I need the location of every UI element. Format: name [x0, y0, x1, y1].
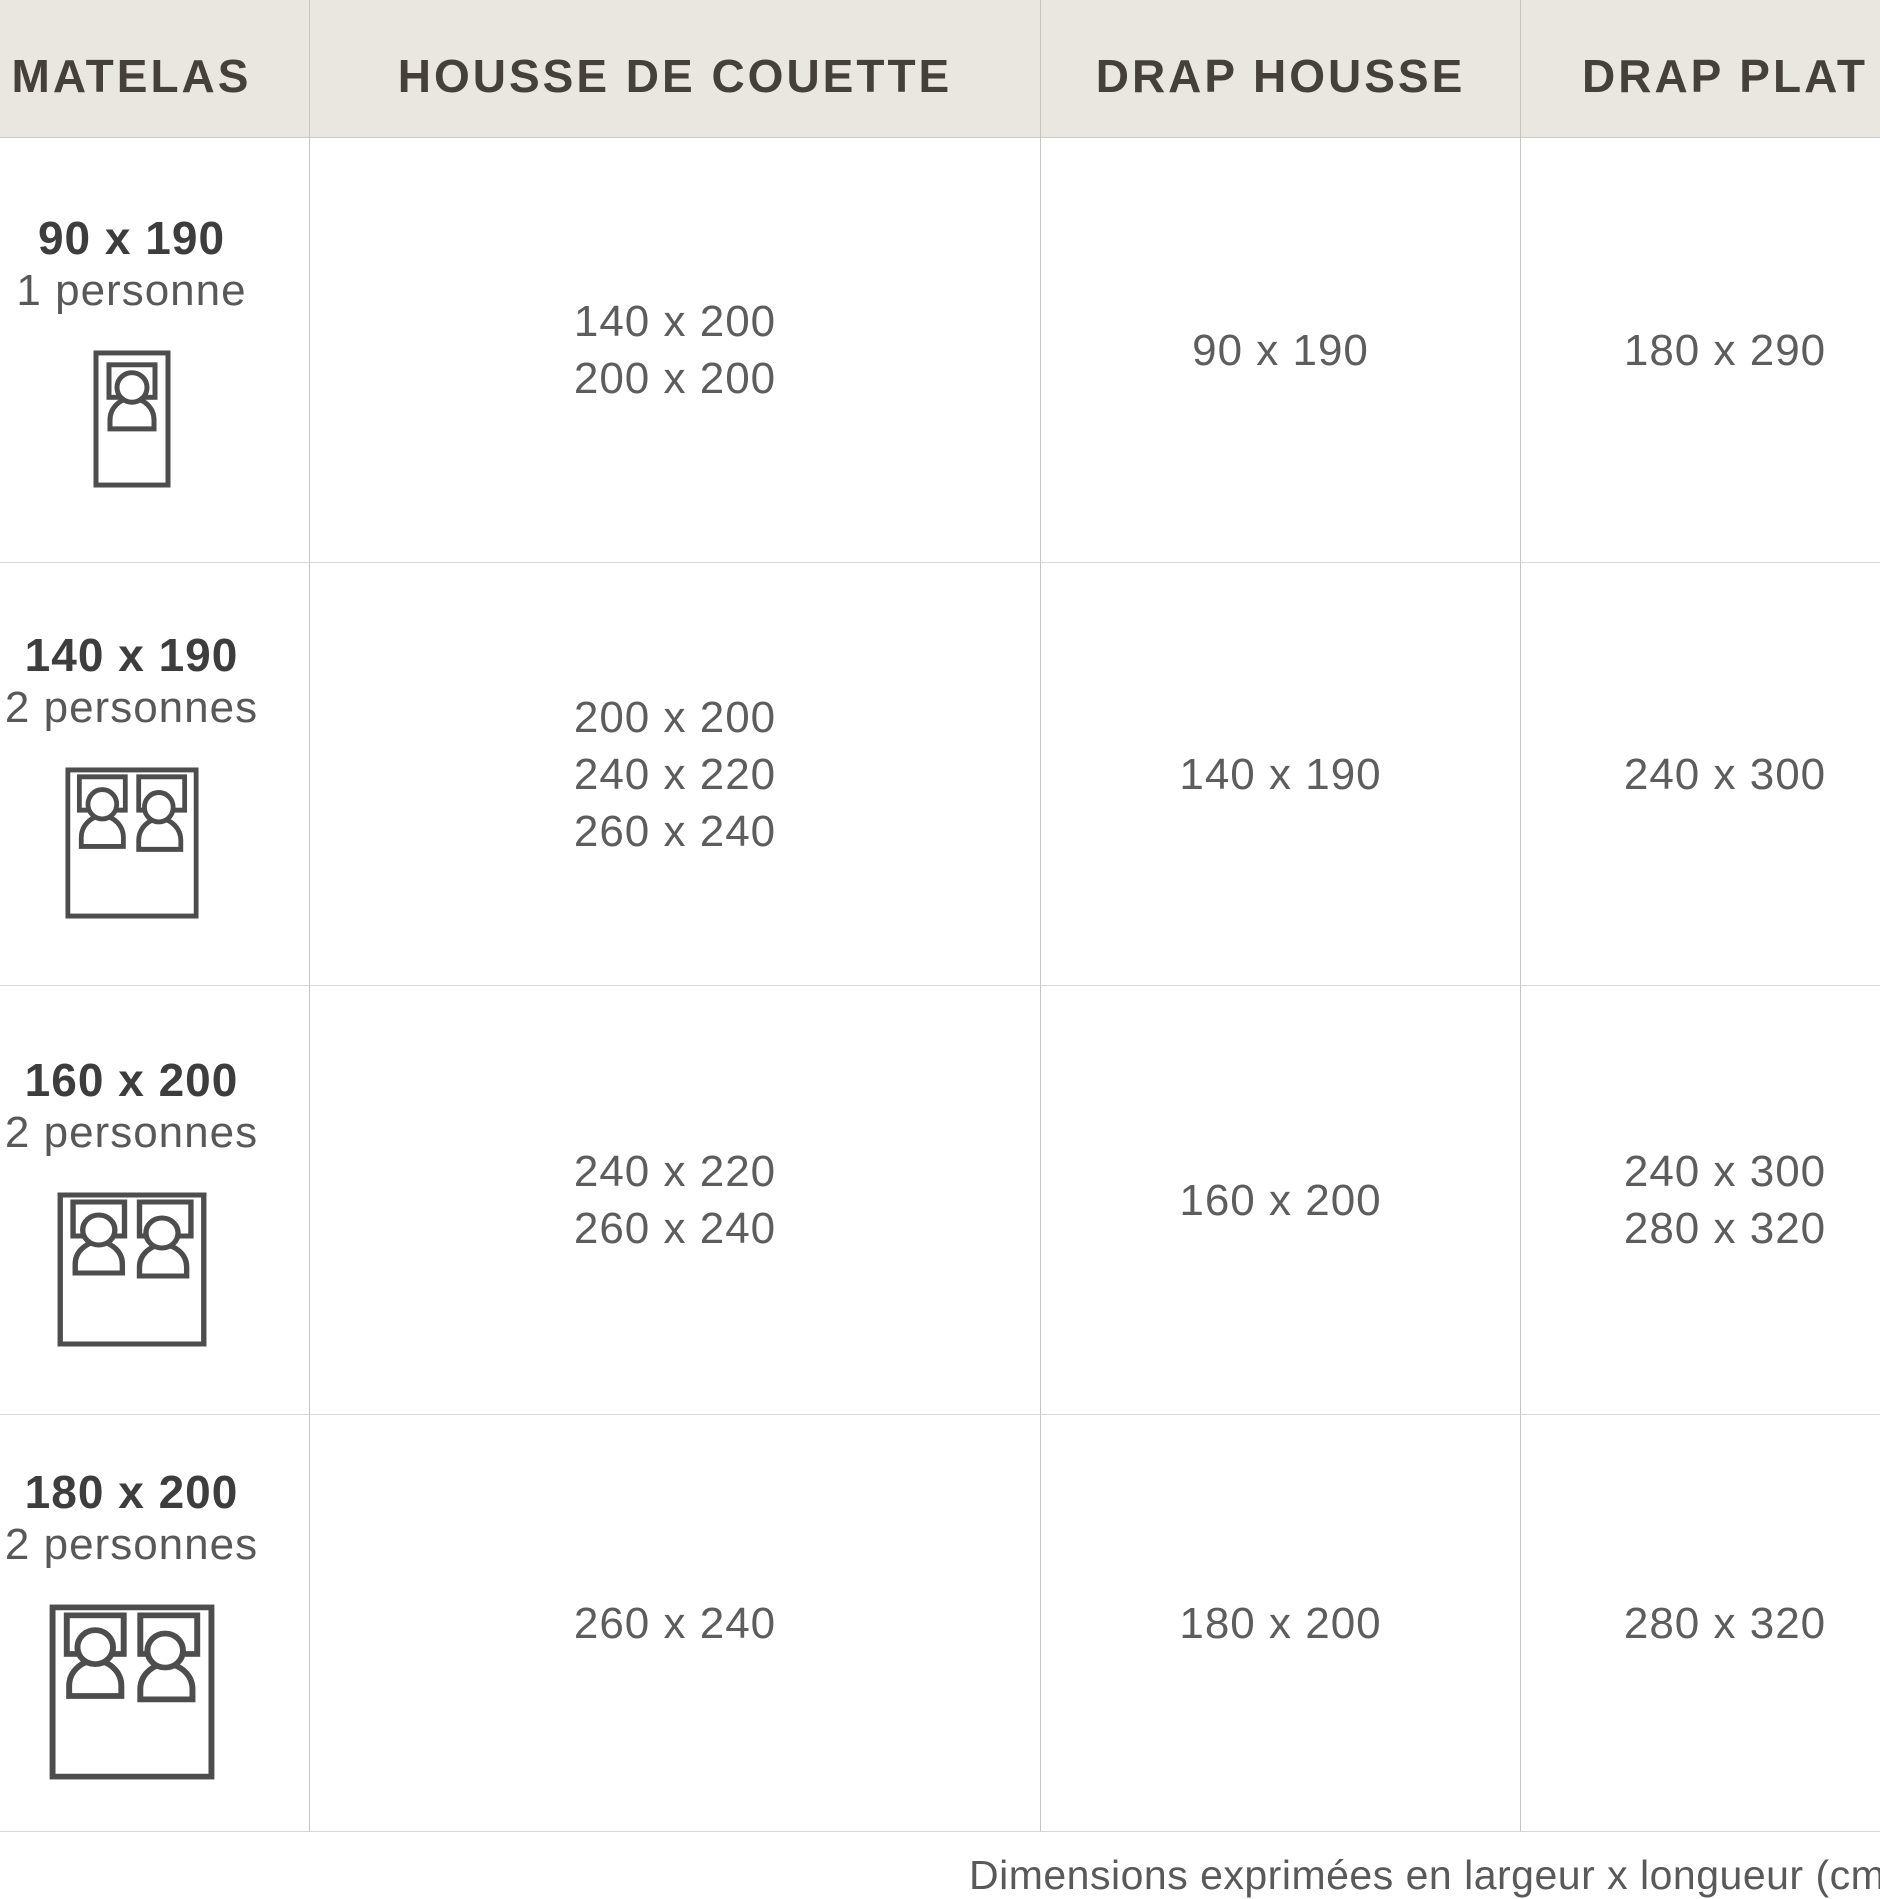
persons-label: 2 personnes — [5, 1518, 258, 1572]
persons-label: 2 personnes — [5, 681, 258, 735]
mattress-size-label: 180 x 200 — [25, 1466, 239, 1518]
size-value: 180 x 290 — [1624, 322, 1826, 379]
drap-housse-cell: 160 x 200 — [1041, 986, 1521, 1415]
bedding-size-table: MATELAS HOUSSE DE COUETTE DRAP HOUSSE DR… — [0, 0, 1880, 1832]
drap-plat-cell: 180 x 290 — [1521, 138, 1880, 563]
size-value: 180 x 200 — [1179, 1595, 1381, 1652]
size-value: 260 x 240 — [574, 1595, 776, 1652]
mattress-size-label: 160 x 200 — [25, 1054, 239, 1106]
housse-de-couette-cell: 140 x 200 200 x 200 — [310, 138, 1041, 563]
drap-plat-cell: 240 x 300 280 x 320 — [1521, 986, 1880, 1415]
size-value: 90 x 190 — [1192, 322, 1369, 379]
matelas-cell: 180 x 200 2 personnes — [0, 1415, 310, 1832]
double-bed-icon — [57, 1192, 207, 1347]
housse-de-couette-cell: 260 x 240 — [310, 1415, 1041, 1832]
housse-de-couette-cell: 240 x 220 260 x 240 — [310, 986, 1041, 1415]
housse-de-couette-cell: 200 x 200 240 x 220 260 x 240 — [310, 563, 1041, 986]
table-row: 180 x 200 2 personnes 260 x 240 180 x 20… — [0, 1415, 1880, 1832]
persons-label: 1 personne — [16, 264, 246, 318]
column-header-matelas: MATELAS — [0, 0, 310, 138]
drap-plat-cell: 240 x 300 — [1521, 563, 1880, 986]
size-value: 200 x 200 — [574, 689, 776, 746]
column-header-drap-housse: DRAP HOUSSE — [1041, 0, 1521, 138]
table-row: 140 x 190 2 personnes 200 x 200 240 x 22… — [0, 563, 1880, 986]
mattress-size-label: 90 x 190 — [38, 212, 225, 264]
double-bed-icon — [65, 767, 199, 919]
table-row: 90 x 190 1 personne 140 x 200 200 x 200 … — [0, 138, 1880, 563]
drap-plat-cell: 280 x 320 — [1521, 1415, 1880, 1832]
matelas-cell: 90 x 190 1 personne — [0, 138, 310, 563]
size-value: 240 x 220 — [574, 1143, 776, 1200]
size-value: 140 x 190 — [1179, 746, 1381, 803]
single-bed-icon — [93, 350, 171, 488]
column-header-housse-de-couette: HOUSSE DE COUETTE — [310, 0, 1041, 138]
size-value: 140 x 200 — [574, 293, 776, 350]
size-value: 240 x 220 — [574, 746, 776, 803]
drap-housse-cell: 90 x 190 — [1041, 138, 1521, 563]
table-header-row: MATELAS HOUSSE DE COUETTE DRAP HOUSSE DR… — [0, 0, 1880, 138]
size-value: 260 x 240 — [574, 803, 776, 860]
persons-label: 2 personnes — [5, 1106, 258, 1160]
dimensions-note: Dimensions exprimées en largeur x longue… — [969, 1852, 1880, 1899]
drap-housse-cell: 180 x 200 — [1041, 1415, 1521, 1832]
table-row: 160 x 200 2 personnes 240 x 220 260 x 24… — [0, 986, 1880, 1415]
size-value: 240 x 300 — [1624, 1143, 1826, 1200]
size-value: 280 x 320 — [1624, 1200, 1826, 1257]
size-value: 160 x 200 — [1179, 1172, 1381, 1229]
column-header-drap-plat: DRAP PLAT — [1521, 0, 1880, 138]
mattress-size-label: 140 x 190 — [25, 629, 239, 681]
size-value: 260 x 240 — [574, 1200, 776, 1257]
matelas-cell: 140 x 190 2 personnes — [0, 563, 310, 986]
size-value: 200 x 200 — [574, 350, 776, 407]
double-bed-icon — [49, 1604, 215, 1780]
size-value: 240 x 300 — [1624, 746, 1826, 803]
drap-housse-cell: 140 x 190 — [1041, 563, 1521, 986]
matelas-cell: 160 x 200 2 personnes — [0, 986, 310, 1415]
size-value: 280 x 320 — [1624, 1595, 1826, 1652]
